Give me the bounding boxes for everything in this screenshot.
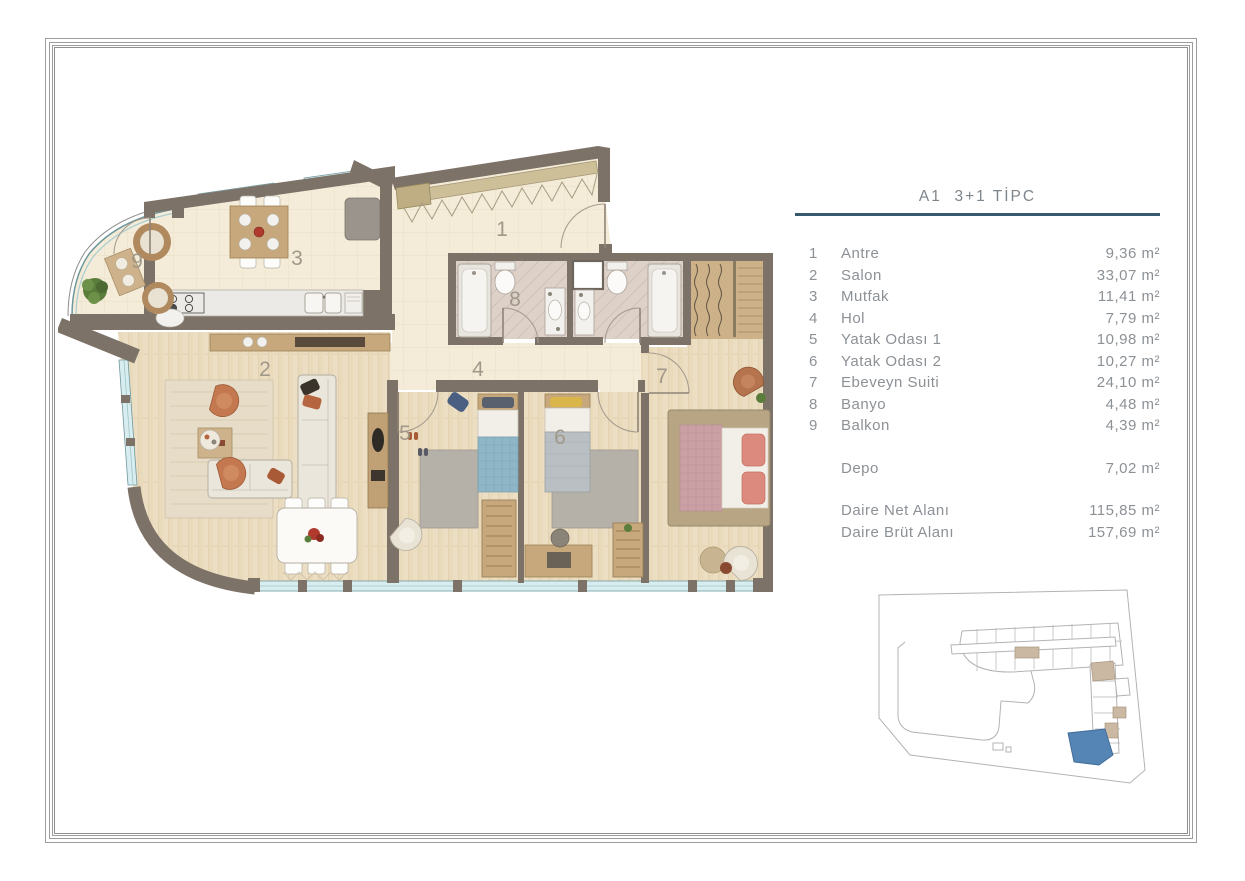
legend-row: 5Yatak Odası 110,98 m² — [795, 329, 1160, 351]
legend-row: 1Antre9,36 m² — [795, 243, 1160, 265]
fridge-icon — [345, 198, 380, 240]
toilet-icon — [607, 270, 627, 294]
wardrobe-icon — [482, 500, 516, 577]
legend-row: 9Balkon4,39 m² — [795, 415, 1160, 437]
apartment-floor-plan: 1 2 3 4 5 6 7 8 9 — [58, 140, 788, 600]
area-legend: A1 3+1 TİPC 1Antre9,36 m² 2Salon33,07 m²… — [795, 188, 1160, 543]
title-rule — [795, 213, 1160, 216]
room-label-yatak1: 5 — [399, 422, 411, 445]
legend-rows: 1Antre9,36 m² 2Salon33,07 m² 3Mutfak11,4… — [795, 243, 1160, 543]
legend-row-net: Daire Net Alanı115,85 m² — [795, 500, 1160, 522]
dining-table-kitchen — [230, 196, 288, 268]
corridor-floor — [392, 255, 450, 345]
unit-type-title: A1 3+1 TİPC — [795, 188, 1160, 206]
sofa-icon — [298, 375, 336, 511]
dishwasher-icon — [345, 293, 362, 313]
room-label-banyo: 8 — [509, 288, 521, 311]
legend-row: 2Salon33,07 m² — [795, 265, 1160, 287]
bed-icon — [478, 394, 518, 492]
desk-chair-icon — [551, 529, 569, 547]
legend-row: 3Mutfak11,41 m² — [795, 286, 1160, 308]
bed-icon — [545, 394, 590, 492]
room-label-balkon: 9 — [131, 250, 143, 273]
legend-row-storage: Depo7,02 m² — [795, 458, 1160, 480]
double-bed-icon — [668, 410, 770, 526]
tv-unit-icon — [368, 413, 388, 508]
dining-table-icon — [277, 498, 357, 574]
room-label-salon: 2 — [259, 358, 271, 381]
legend-row: 8Banyo4,48 m² — [795, 394, 1160, 416]
legend-row: 6Yatak Odası 210,27 m² — [795, 351, 1160, 373]
room-label-mutfak: 3 — [291, 247, 303, 270]
side-table-icon — [200, 430, 220, 450]
rug — [420, 450, 478, 528]
room-label-antre: 1 — [496, 218, 508, 241]
room-label-hol: 4 — [472, 358, 484, 381]
keyplan-highlighted-unit — [1068, 729, 1113, 765]
room-label-ebeveyn: 7 — [656, 365, 668, 388]
floor-plan-page: { "legend": { "title": "A1 3+1 TİPC", "r… — [0, 0, 1245, 881]
shaft — [573, 261, 603, 289]
legend-row: 7Ebeveyn Suiti24,10 m² — [795, 372, 1160, 394]
site-key-plan — [865, 585, 1165, 795]
room-label-yatak2: 6 — [554, 426, 566, 449]
legend-totals: Daire Net Alanı115,85 m² Daire Brüt Alan… — [795, 500, 1160, 543]
tv-icon — [295, 337, 365, 347]
plant-icon — [756, 393, 766, 403]
legend-row: 4Hol7,79 m² — [795, 308, 1160, 330]
sink-icon — [305, 293, 341, 313]
legend-row-brut: Daire Brüt Alanı157,69 m² — [795, 522, 1160, 544]
